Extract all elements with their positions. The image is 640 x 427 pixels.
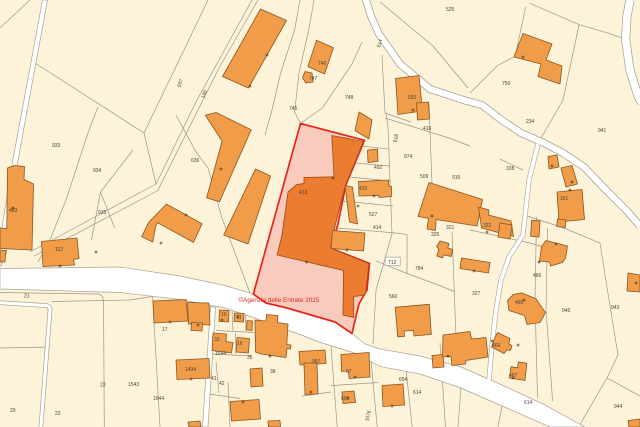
svg-text:466: 466 xyxy=(533,273,542,279)
svg-text:957: 957 xyxy=(312,359,321,365)
svg-text:413: 413 xyxy=(299,190,308,196)
svg-text:325: 325 xyxy=(431,232,440,238)
svg-text:943: 943 xyxy=(611,305,620,311)
svg-text:1644: 1644 xyxy=(215,351,226,357)
svg-text:527: 527 xyxy=(369,212,378,218)
svg-text:946: 946 xyxy=(562,308,571,314)
svg-text:483: 483 xyxy=(9,208,18,214)
svg-text:41: 41 xyxy=(211,376,217,382)
svg-text:35: 35 xyxy=(247,355,253,361)
svg-text:654: 654 xyxy=(399,377,408,383)
svg-text:416: 416 xyxy=(423,126,432,132)
svg-text:934: 934 xyxy=(93,168,102,174)
svg-text:746: 746 xyxy=(318,61,327,67)
svg-text:38: 38 xyxy=(270,369,276,375)
svg-text:16: 16 xyxy=(237,341,243,347)
svg-text:321: 321 xyxy=(446,225,455,231)
svg-text:465: 465 xyxy=(515,300,524,306)
svg-text:23: 23 xyxy=(100,383,106,389)
svg-text:17: 17 xyxy=(162,327,168,333)
svg-text:935: 935 xyxy=(98,210,107,216)
svg-text:525: 525 xyxy=(446,7,455,13)
svg-text:916: 916 xyxy=(452,175,461,181)
svg-text:42: 42 xyxy=(219,381,225,387)
svg-text:784: 784 xyxy=(415,266,424,272)
svg-text:1543: 1543 xyxy=(128,382,139,388)
svg-text:974: 974 xyxy=(404,154,413,160)
svg-text:21: 21 xyxy=(24,294,30,300)
svg-text:747: 747 xyxy=(309,76,318,82)
svg-text:328: 328 xyxy=(506,166,515,172)
svg-text:941: 941 xyxy=(598,128,607,134)
svg-text:327: 327 xyxy=(472,291,481,297)
svg-text:234: 234 xyxy=(526,119,535,125)
svg-text:33: 33 xyxy=(214,337,220,343)
svg-text:750: 750 xyxy=(502,81,511,87)
svg-text:745: 745 xyxy=(289,106,298,112)
svg-text:469: 469 xyxy=(492,343,501,349)
svg-text:67: 67 xyxy=(346,369,352,375)
svg-text:560: 560 xyxy=(389,294,398,300)
svg-text:1644: 1644 xyxy=(153,396,164,402)
svg-text:636: 636 xyxy=(191,158,200,164)
svg-text:71: 71 xyxy=(236,315,242,321)
svg-text:748: 748 xyxy=(345,95,354,101)
svg-text:322: 322 xyxy=(483,223,492,229)
svg-text:112: 112 xyxy=(55,247,63,253)
svg-text:614: 614 xyxy=(413,390,422,396)
svg-text:22: 22 xyxy=(55,411,61,417)
svg-text:933: 933 xyxy=(52,143,61,149)
svg-text:©Agenzia delle Entrate 2025: ©Agenzia delle Entrate 2025 xyxy=(239,296,320,304)
svg-text:467: 467 xyxy=(509,373,518,379)
svg-text:414: 414 xyxy=(373,225,382,231)
svg-text:415: 415 xyxy=(359,186,368,192)
svg-text:691: 691 xyxy=(341,396,350,402)
svg-text:1434: 1434 xyxy=(185,367,196,373)
svg-text:161: 161 xyxy=(560,196,569,202)
svg-text:492: 492 xyxy=(374,165,383,171)
svg-text:712: 712 xyxy=(388,260,397,266)
svg-text:944: 944 xyxy=(614,404,623,410)
svg-text:29: 29 xyxy=(10,408,16,414)
svg-text:509: 509 xyxy=(420,174,429,180)
svg-text:10: 10 xyxy=(221,312,227,318)
svg-text:614: 614 xyxy=(524,400,533,406)
svg-text:593: 593 xyxy=(408,95,417,101)
